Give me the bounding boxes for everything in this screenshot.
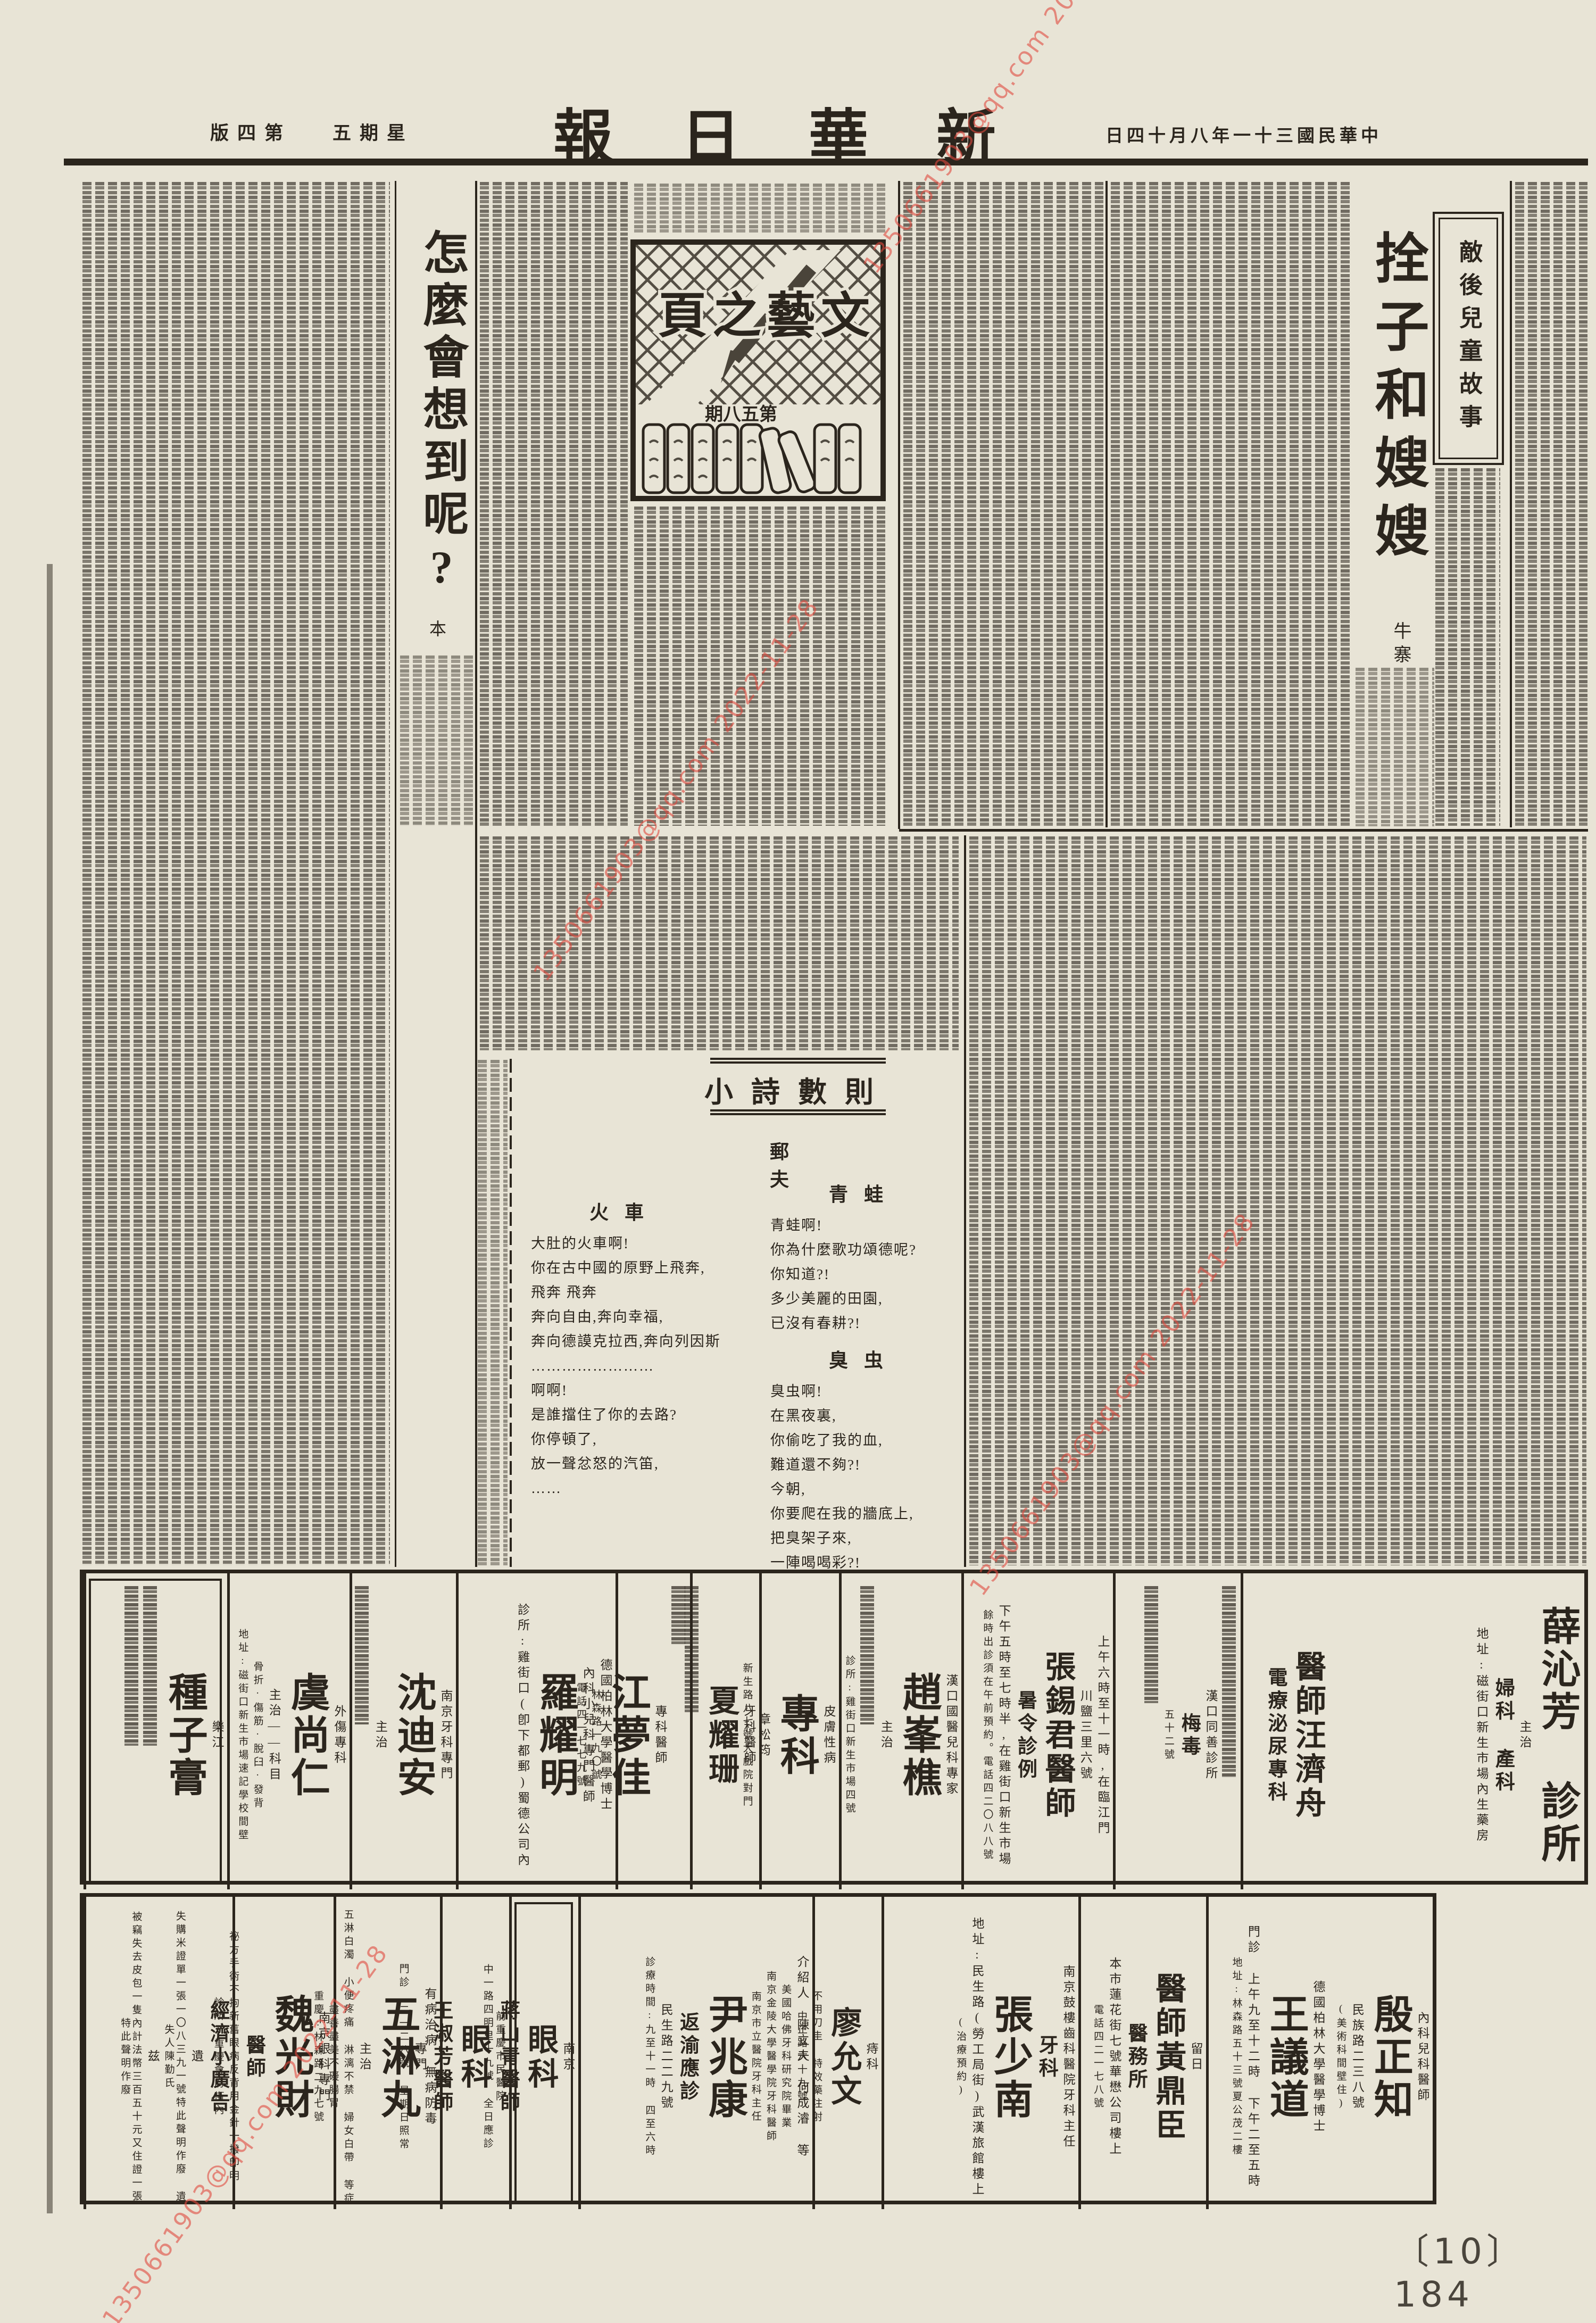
bookshelf-illustration: 頁之藝文 期八五第 <box>636 245 880 496</box>
ad-luo-yaoming: 德國柏林大學醫學博士內科小兒科專門醫師羅耀明診所:雞街口(卽下都郵)蜀德公司內 <box>456 1573 616 1889</box>
body-text-block <box>400 656 475 826</box>
scan-edge-artifact <box>47 564 53 2213</box>
body-text-block <box>903 182 1103 827</box>
section-rule <box>899 829 1588 832</box>
ad-jiang-mengjia: 專科醫師江夢佳林森路一九〇號電話四一七七九號 <box>616 1573 690 1889</box>
series-box-label: 敵後兒童故事 <box>1451 239 1485 437</box>
ad-xue-qinfang-clinic: 薛沁芳 診所主治婦科 產科地址:磁街口新生市場內生藥房 <box>1328 1573 1596 1889</box>
date-line: 日四十月八年一十三國民華中 <box>1105 121 1382 147</box>
poem-frog: 青蛙青蛙啊!你為什麼歌功頌德呢?你知道?!多少美麗的田園,已沒有春耕?! <box>770 1179 962 1335</box>
column-rule <box>1105 181 1108 827</box>
series-box: 敵後兒童故事 <box>1433 212 1504 465</box>
body-text-block <box>478 1060 508 1565</box>
column-rule <box>475 181 477 1567</box>
poem-bedbug: 臭虫臭虫啊!在黑夜裏,你偷吃了我的血,難道還不夠?!今朝,你要爬在我的牆底上,把… <box>770 1345 962 1575</box>
ad-wang-shufang: 前重慶市民醫院眼科王淑芳醫師專門門診 二一二八號 星期日照常 <box>440 1897 509 2209</box>
body-text-block <box>1435 468 1500 826</box>
body-text-block <box>1515 182 1587 826</box>
body-text-block <box>82 182 390 1565</box>
ad-yin-zhaokang: 介紹人 陳立夫 何成濬 等美國哈佛牙科研究院畢業南京金陵大學醫學院牙科醫師南京市… <box>578 1897 812 2209</box>
edition-label: 版四第 <box>210 118 292 145</box>
ad-zhongzi-gao: 樂江種子膏 <box>84 1573 227 1889</box>
ad-jiang-shanqing: 南京眼科蔣山青醫師中一路四明里十九號 全日應診 <box>509 1897 578 2209</box>
column-rule <box>964 835 966 1567</box>
ad-band-upper: 薛沁芳 診所主治婦科 產科地址:磁街口新生市場內生藥房 醫師汪濟舟電療泌尿專科 … <box>80 1570 1588 1885</box>
ad-skin-vd-specialist: 皮膚性病專科章松筠新生路八七號大戲院對門 <box>759 1573 839 1889</box>
ad-zhang-shaonan: 南京鼓樓齒科醫院牙科主任牙科張少南地址:民生路(勞工局街)武漢旅館樓上(治療預約… <box>882 1897 1078 2209</box>
literary-page-graphic: 頁之藝文 期八五第 <box>630 239 886 501</box>
story-title-right: 拴子和嫂嫂 <box>1358 230 1436 613</box>
double-rule-top <box>710 1058 886 1060</box>
newspaper-page: 版四第 五期星 報日華新 日四十月八年一十三國民華中 敵後兒童故事 拴子和嫂嫂 … <box>0 0 1596 2323</box>
ad-yin-zhengzhi: 內科兒科醫師殷正知民族路二三八號(美術科間壁住) <box>1328 1897 1433 2209</box>
weekday-label: 五期星 <box>332 118 414 145</box>
ad-band-lower: 內科兒科醫師殷正知民族路二三八號(美術科間壁住) 德國柏林大學醫學博士王議道門診… <box>80 1893 1436 2204</box>
literary-page-title: 頁之藝文 <box>658 289 875 343</box>
ad-zhang-xijun: 上午六時至十一時,在臨江門川鹽三里六號張錫君醫師暑令診例下午五時至七時半,在雞街… <box>961 1573 1113 1889</box>
ad-zhao-fengqiao: 漢口國醫兒科專家趙峯樵主治診所:雞街口新生市場四號 <box>839 1573 961 1889</box>
wavy-column-rule <box>510 1059 512 1567</box>
story-title-left: 怎麼會想到呢? <box>409 229 475 601</box>
poem-train: 火車大肚的火車啊!你在古中國的原野上飛奔,飛奔 飛奔奔向自由,奔向幸福,奔向德謨… <box>531 1188 765 1500</box>
ad-liao-yunwen: 痔科廖允文不用刀圭 特效藥注射中正路六十九號 <box>812 1897 882 2209</box>
ad-shen-dian: 南京牙科專門沈迪安主治 <box>350 1573 456 1889</box>
poem-frog-and-bedbug: 青蛙青蛙啊!你為什麼歌功頌德呢?你知道?!多少美麗的田園,已沒有春耕?! 臭虫臭… <box>770 1169 962 1575</box>
double-rule-bottom <box>710 1109 886 1111</box>
body-text-block <box>1356 668 1434 826</box>
ad-yu-shangren: 外傷專科虞尚仁主治——科目骨折·傷筋·脫臼·發背地址:磁街口新生市場速記學校間壁 <box>227 1573 350 1889</box>
header-rule <box>64 159 1588 165</box>
poems-section-title: 小詩數則 <box>692 1068 904 1110</box>
body-text-block <box>480 182 628 826</box>
ad-xia-yaoshan: 牙科醫師夏耀珊 <box>690 1573 759 1889</box>
column-rule <box>395 181 396 1567</box>
column-rule <box>898 181 900 829</box>
column-rule <box>1510 181 1512 827</box>
body-text-block <box>634 184 885 233</box>
ad-wulin-wan: 有病治病 無病防毒五淋丸主治五淋白濁 小便疼痛 淋漓不禁 婦女白帶 等症盡善盡美… <box>334 1897 440 2209</box>
ad-wang-yidao: 德國柏林大學醫學博士王議道門診 上午九至十二時 下午二至五時地址:林森路五十三號… <box>1206 1897 1328 2209</box>
body-text-block <box>1111 182 1351 826</box>
story-author-left: 本 <box>425 620 449 637</box>
ad-huang-dingchen: 留日醫師黃鼎臣醫務所本市蓮花街七號華懋公司樓上電話四二一七八號 <box>1078 1897 1206 2209</box>
literary-page-issue: 期八五第 <box>705 404 777 425</box>
ad-tongshan-clinic: 漢口同善診所梅毒五十二號 <box>1113 1573 1241 1889</box>
page-number: 〔10〕 184 <box>1394 2223 1596 2315</box>
story-author-right: 牛寨 <box>1387 621 1414 668</box>
ad-wang-jizhou: 醫師汪濟舟電療泌尿專科 <box>1241 1573 1328 1889</box>
